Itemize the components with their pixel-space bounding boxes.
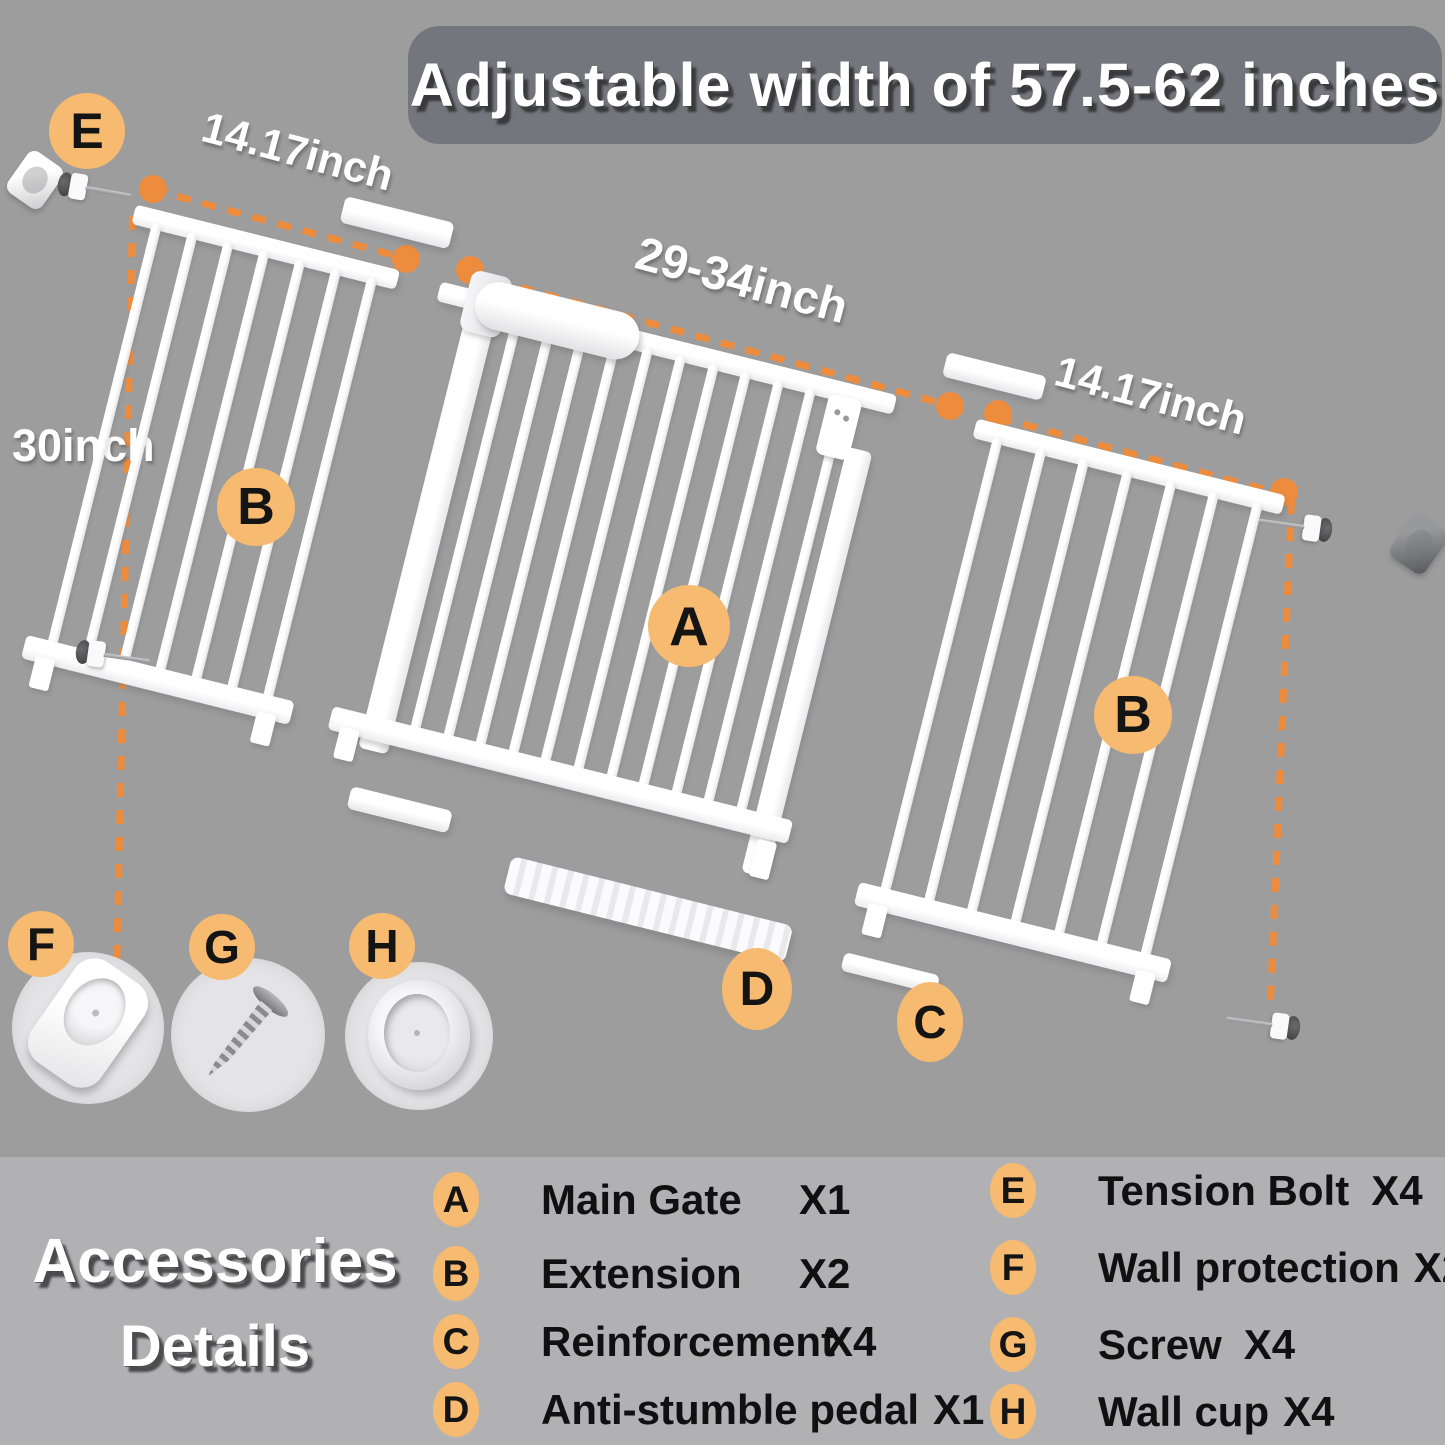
legend-count: X4	[825, 1318, 876, 1366]
legend-label: Wall cup	[1098, 1388, 1269, 1436]
dim-dot	[936, 392, 964, 420]
badge-letter: A	[669, 594, 709, 658]
badge-letter: H	[365, 919, 398, 973]
accessories-title-line2: Details	[10, 1306, 420, 1388]
tension-bolt-icon	[56, 170, 133, 208]
legend-row-wall-cup: H Wall cup X4	[990, 1384, 1335, 1439]
extension-bars	[47, 223, 378, 702]
badge-letter: G	[204, 920, 240, 974]
legend-row-screw: G Screw X4	[990, 1317, 1295, 1372]
legend-label: Tension Bolt	[1098, 1167, 1349, 1215]
legend-label: Reinforcement	[541, 1318, 825, 1366]
legend-count: X1	[799, 1176, 850, 1224]
badge-pedal: D	[722, 948, 792, 1030]
legend-row-reinforcement: C Reinforcement X4	[433, 1314, 953, 1369]
wall-cup-icon	[1387, 511, 1445, 578]
legend-row-tension-bolt: E Tension Bolt X4	[990, 1163, 1423, 1218]
badge-screw: G	[189, 914, 255, 980]
legend-label: Screw	[1098, 1321, 1222, 1369]
legend-label: Extension	[541, 1250, 799, 1298]
badge-letter: D	[740, 962, 775, 1017]
badge-letter: B	[1114, 685, 1152, 745]
reinforcement-bar-bottom-left	[346, 786, 452, 833]
legend-label: Main Gate	[541, 1176, 799, 1224]
legend-label: Anti-stumble pedal	[541, 1386, 919, 1434]
legend-badge: C	[433, 1314, 479, 1369]
badge-letter: F	[27, 917, 55, 971]
legend-row-main-gate: A Main Gate X1	[433, 1172, 953, 1227]
legend-count: X4	[1283, 1388, 1334, 1436]
badge-letter: B	[237, 477, 275, 537]
legend-count: X4	[1244, 1321, 1295, 1369]
legend-badge: B	[433, 1246, 479, 1301]
product-infographic: Adjustable width of 57.5-62 inches E 14.…	[0, 0, 1445, 1445]
bolt-rod	[85, 186, 131, 198]
legend-label: Wall protection	[1098, 1244, 1400, 1292]
extension-bars	[879, 437, 1262, 960]
banner-title: Adjustable width of 57.5-62 inches	[410, 50, 1441, 120]
wall-cup-product-icon	[368, 980, 470, 1090]
badge-extension-left: B	[217, 468, 295, 546]
legend-row-wall-protection: F Wall protection X2	[990, 1240, 1445, 1295]
legend-count: X2	[799, 1250, 850, 1298]
badge-letter: C	[913, 995, 946, 1049]
accessories-title-line1: Accessories	[10, 1218, 420, 1306]
legend-count: X2	[1414, 1244, 1445, 1292]
legend-badge: H	[990, 1384, 1036, 1439]
badge-wall-protection: F	[8, 911, 74, 977]
badge-letter: E	[70, 102, 103, 160]
badge-main-gate: A	[648, 585, 730, 667]
badge-wall-cup: H	[349, 913, 415, 979]
legend-badge: D	[433, 1382, 479, 1437]
legend-badge: A	[433, 1172, 479, 1227]
legend-count: X1	[933, 1386, 984, 1434]
accessories-title: Accessories Details	[10, 1218, 420, 1388]
badge-extension-right: B	[1094, 676, 1172, 754]
dim-left-width-label: 14.17inch	[158, 93, 436, 212]
legend-count: X4	[1371, 1167, 1422, 1215]
legend-badge: F	[990, 1240, 1036, 1295]
legend-row-extension: B Extension X2	[433, 1246, 953, 1301]
badge-tension-bolt-e: E	[49, 93, 125, 169]
tension-bolt-icon	[1225, 1006, 1302, 1042]
dim-line-right-vertical	[1267, 500, 1295, 1005]
extension-panel-right	[862, 420, 1280, 981]
legend-row-pedal: D Anti-stumble pedal X1	[433, 1382, 993, 1437]
badge-reinforcement: C	[897, 982, 963, 1062]
width-banner: Adjustable width of 57.5-62 inches	[408, 26, 1442, 144]
legend-badge: E	[990, 1163, 1036, 1218]
legend-badge: G	[990, 1317, 1036, 1372]
wall-cup-icon	[3, 147, 66, 212]
